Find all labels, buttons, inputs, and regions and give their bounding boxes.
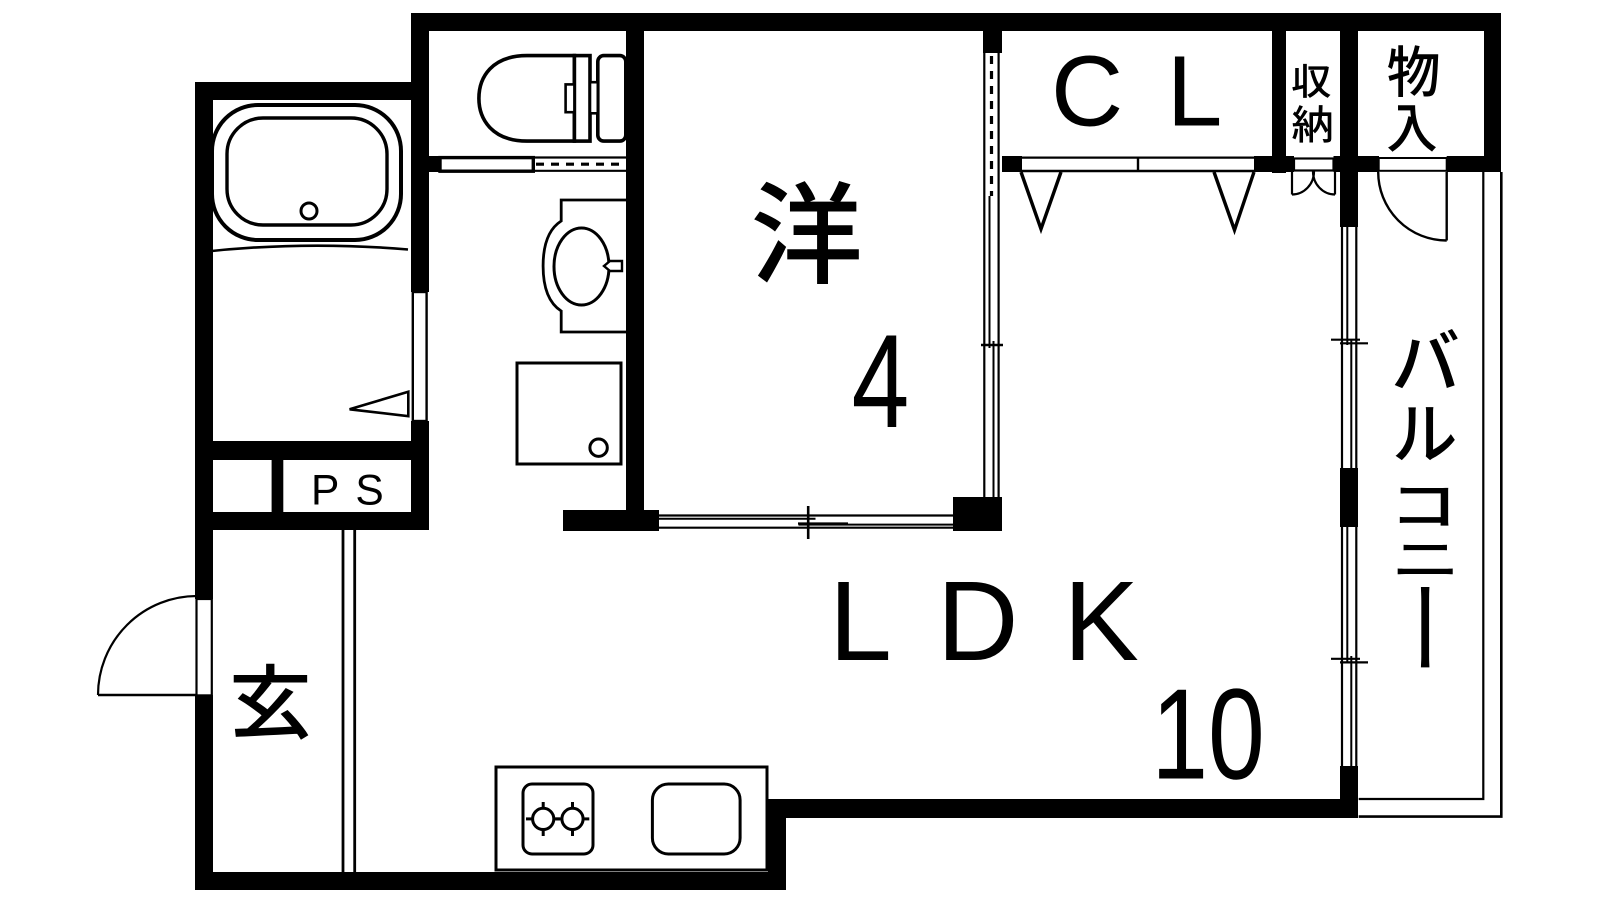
svg-text:PS: PS bbox=[311, 467, 400, 514]
svg-text:LDK: LDK bbox=[829, 558, 1184, 684]
svg-text:CL: CL bbox=[1051, 36, 1266, 148]
svg-text:4: 4 bbox=[852, 308, 910, 456]
svg-text:10: 10 bbox=[1151, 662, 1264, 806]
